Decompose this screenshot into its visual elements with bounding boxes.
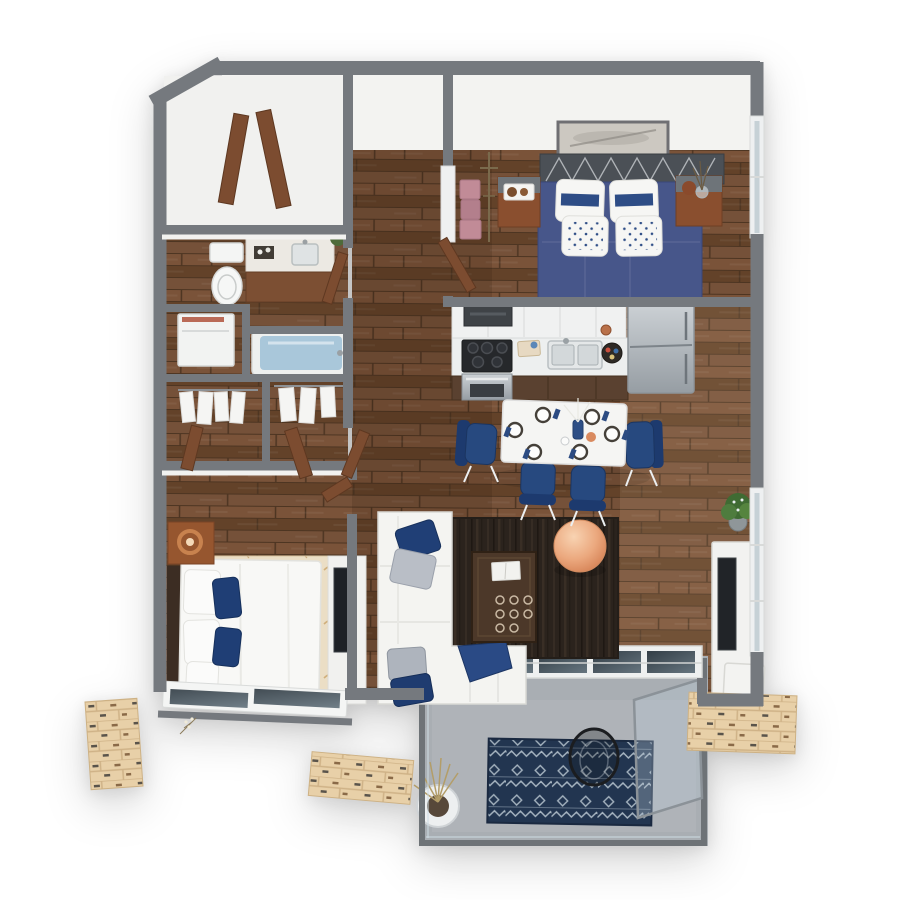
dining-chair (520, 461, 555, 496)
pouf (554, 520, 606, 572)
decor-bowl (520, 188, 528, 196)
mug-blue (531, 342, 538, 349)
oven-window (470, 384, 504, 397)
hanging-clothes (230, 391, 246, 423)
decor-branch-bud (187, 725, 190, 728)
sink-faucet (563, 338, 569, 344)
decor-peach (586, 432, 596, 442)
sink-bowl (552, 345, 574, 365)
bathtub-water (260, 336, 342, 370)
egg-chair (570, 729, 618, 785)
serving-tray (602, 343, 622, 363)
hanging-clothes (279, 387, 297, 421)
console-plant-flower (733, 501, 736, 504)
storage-box-pink (461, 200, 480, 219)
centerpiece-vase (573, 420, 583, 439)
decor-bowl (507, 187, 517, 197)
bathtub-faucet (337, 350, 343, 356)
washer-accent (182, 317, 224, 322)
fridge (628, 303, 694, 393)
toilet-tank (210, 243, 243, 262)
console-plant-flower (737, 509, 740, 512)
floor-plan-rendering (0, 0, 900, 900)
stove-burner (468, 343, 478, 353)
master-pillow-navy (212, 627, 242, 668)
master-pillow-navy (212, 577, 242, 619)
storage-box-pink (460, 220, 481, 239)
master-bed-fold (288, 564, 289, 702)
hanging-clothes (179, 391, 195, 422)
dining-chair (465, 423, 498, 465)
master-lamp-glow (186, 538, 194, 546)
vanity-faucet (303, 240, 308, 245)
place-setting (536, 408, 550, 422)
tray-item (606, 348, 611, 353)
vanity-tray (254, 246, 274, 259)
brick-exterior-left (85, 698, 143, 789)
dining-chair (625, 422, 655, 469)
tray-item (610, 355, 615, 360)
dining-chair (570, 465, 605, 502)
hanging-clothes (214, 392, 228, 422)
apartment-floorplan-screenshot (0, 0, 900, 900)
vanity-soap (266, 248, 271, 253)
stove-burner (482, 343, 493, 354)
wall-end-white (441, 166, 455, 242)
decor-glass (561, 437, 569, 445)
bed2-pillow-band (561, 193, 599, 206)
living-tv (718, 558, 736, 650)
vanity-sink (292, 244, 318, 265)
bed2-pillow-dots (621, 222, 657, 251)
brick-exterior-south (308, 752, 413, 805)
sliding-door-pane (647, 651, 695, 673)
place-setting (585, 410, 599, 424)
hanging-clothes (320, 387, 336, 418)
cutting-board (518, 340, 541, 356)
console-plant (721, 504, 737, 520)
console-plant-flower (741, 499, 744, 502)
vanity-soap (258, 250, 263, 255)
place-setting (605, 427, 619, 441)
decor-branch-bud (190, 717, 193, 720)
stove-burner (473, 357, 484, 368)
stove-burner (497, 343, 507, 353)
hanging-clothes (299, 388, 316, 424)
storage-box-pink (460, 180, 480, 199)
bed2-pillow-band (615, 193, 653, 206)
dining-chair-back (569, 499, 606, 511)
decor-branch-bud (184, 720, 187, 723)
cup-copper (601, 325, 611, 335)
hanging-clothes (197, 392, 213, 425)
bed2-pillow-dots (567, 222, 603, 251)
dining-shadow (490, 466, 650, 490)
tray-item (614, 349, 619, 354)
entry-closet-area (164, 76, 350, 234)
dining-chair-back (519, 493, 556, 505)
stove-burner (492, 357, 502, 367)
decor-vase (682, 181, 696, 195)
vanity-cabinet (246, 272, 334, 302)
sink-bowl (578, 345, 598, 365)
